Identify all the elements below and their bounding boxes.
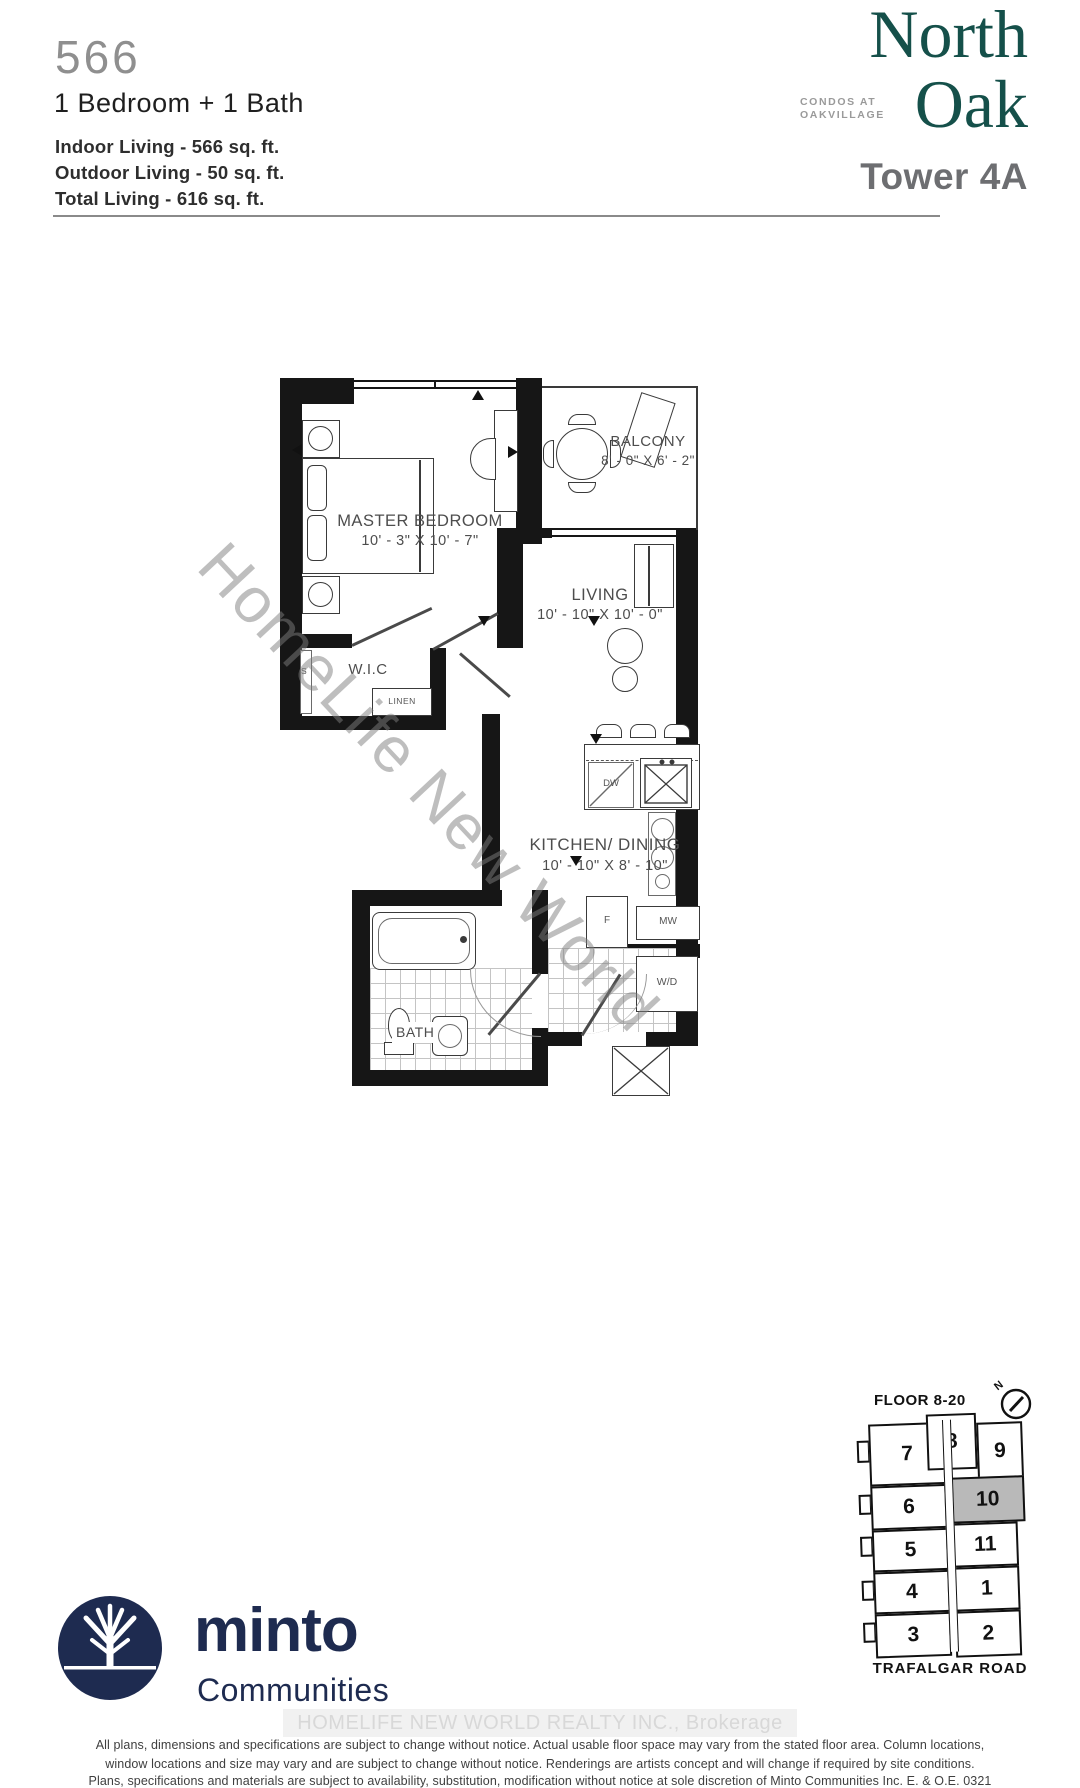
disclaimer-line3: Plans, specifications and materials are … bbox=[0, 1774, 1080, 1788]
disclaimer-line2: window locations and size may vary and a… bbox=[0, 1757, 1080, 1771]
wall bbox=[352, 1070, 548, 1086]
desk bbox=[494, 410, 518, 512]
window bbox=[552, 528, 676, 537]
room-name: BALCONY bbox=[596, 432, 700, 452]
keyplan-unit-11: 11 bbox=[952, 1521, 1019, 1567]
room-name: LIVING bbox=[528, 584, 672, 606]
wall bbox=[548, 1030, 582, 1046]
door-leaf bbox=[459, 652, 511, 698]
brokerage-watermark-text: HOMELIFE NEW WORLD REALTY INC., Brokerag… bbox=[283, 1709, 796, 1737]
balcony-rail bbox=[542, 386, 698, 388]
unit-number-label: 4 bbox=[906, 1580, 919, 1604]
keyplan-road-label: TRAFALGAR ROAD bbox=[860, 1660, 1040, 1677]
marker-icon bbox=[472, 390, 484, 400]
unit-number-label: 2 bbox=[982, 1621, 995, 1645]
keyplan-unit-4: 4 bbox=[873, 1570, 950, 1615]
unit-number-label: 10 bbox=[976, 1487, 1000, 1512]
pillow bbox=[307, 465, 327, 511]
bathtub-inner bbox=[378, 918, 470, 964]
faucet-icon bbox=[460, 936, 467, 943]
keyplan-building: 7 9 8 6 10 5 11 4 1 3 2 bbox=[856, 1411, 1032, 1661]
unit-number-label: 11 bbox=[974, 1532, 997, 1557]
bath-sink-bowl bbox=[438, 1024, 462, 1048]
wall bbox=[516, 378, 542, 544]
unit-number-label: 9 bbox=[994, 1439, 1007, 1463]
north-letter: N bbox=[992, 1379, 1006, 1393]
unit-number-label: 1 bbox=[981, 1576, 994, 1600]
brokerage-watermark: HOMELIFE NEW WORLD REALTY INC., Brokerag… bbox=[0, 1712, 1080, 1735]
room-dims: 8' - 0" X 6' - 2" bbox=[596, 452, 700, 470]
marker-icon bbox=[590, 734, 602, 744]
desk-chair bbox=[470, 438, 496, 480]
marker-icon bbox=[508, 446, 518, 458]
wall bbox=[352, 890, 370, 1086]
unit-number-label: 6 bbox=[903, 1495, 916, 1519]
lamp-icon bbox=[308, 582, 333, 607]
room-label-master: MASTER BEDROOM 10' - 3" X 10' - 7" bbox=[330, 510, 510, 552]
keyplan-unit-3: 3 bbox=[875, 1612, 952, 1659]
stool bbox=[664, 724, 690, 738]
developer-division: Communities bbox=[197, 1674, 389, 1706]
marker-icon bbox=[292, 444, 302, 456]
keyplan-unit-1: 1 bbox=[953, 1565, 1020, 1611]
lamp-icon bbox=[308, 426, 333, 451]
unit-number-label: 5 bbox=[904, 1538, 917, 1562]
keyplan-unit-6: 6 bbox=[870, 1484, 947, 1531]
marker-icon bbox=[478, 616, 490, 626]
toilet-tank bbox=[384, 1042, 414, 1055]
side-table bbox=[607, 628, 643, 664]
keyplan-unit-9: 9 bbox=[976, 1421, 1024, 1481]
dishwasher-label: DW bbox=[588, 778, 634, 789]
minto-tree-icon bbox=[58, 1596, 162, 1700]
balcony-chair bbox=[568, 482, 596, 493]
developer-name: minto bbox=[194, 1600, 358, 1662]
keyplan-unit-10-highlighted: 10 bbox=[950, 1475, 1026, 1524]
microwave-label: MW bbox=[636, 916, 700, 927]
window-mullion bbox=[434, 380, 436, 389]
wall bbox=[646, 1030, 698, 1046]
keyplan-floor-label: FLOOR 8-20 bbox=[874, 1392, 966, 1409]
unit-number-label: 3 bbox=[907, 1623, 920, 1647]
room-name: BATH bbox=[396, 1023, 434, 1042]
balcony-chair bbox=[543, 440, 554, 468]
room-label-bath: BATH bbox=[392, 1022, 438, 1043]
room-dims: 10' - 10" X 10' - 0" bbox=[528, 606, 672, 626]
room-name: MASTER BEDROOM bbox=[330, 510, 510, 532]
room-label-balcony: BALCONY 8' - 0" X 6' - 2" bbox=[596, 432, 700, 470]
pillow bbox=[307, 515, 327, 561]
closet-x bbox=[612, 1046, 670, 1096]
door-leaf bbox=[351, 607, 432, 647]
room-label-living: LIVING 10' - 10" X 10' - 0" bbox=[528, 584, 672, 626]
unit-number-label: 7 bbox=[901, 1442, 914, 1466]
keyplan-unit-2: 2 bbox=[955, 1609, 1023, 1657]
keyplan-unit-5: 5 bbox=[872, 1528, 949, 1573]
balcony-chair bbox=[568, 414, 596, 425]
disclaimer-line1: All plans, dimensions and specifications… bbox=[0, 1738, 1080, 1752]
sink-lines bbox=[640, 758, 692, 808]
room-dims: 10' - 3" X 10' - 7" bbox=[330, 532, 510, 552]
stool bbox=[630, 724, 656, 738]
side-table bbox=[612, 666, 638, 692]
